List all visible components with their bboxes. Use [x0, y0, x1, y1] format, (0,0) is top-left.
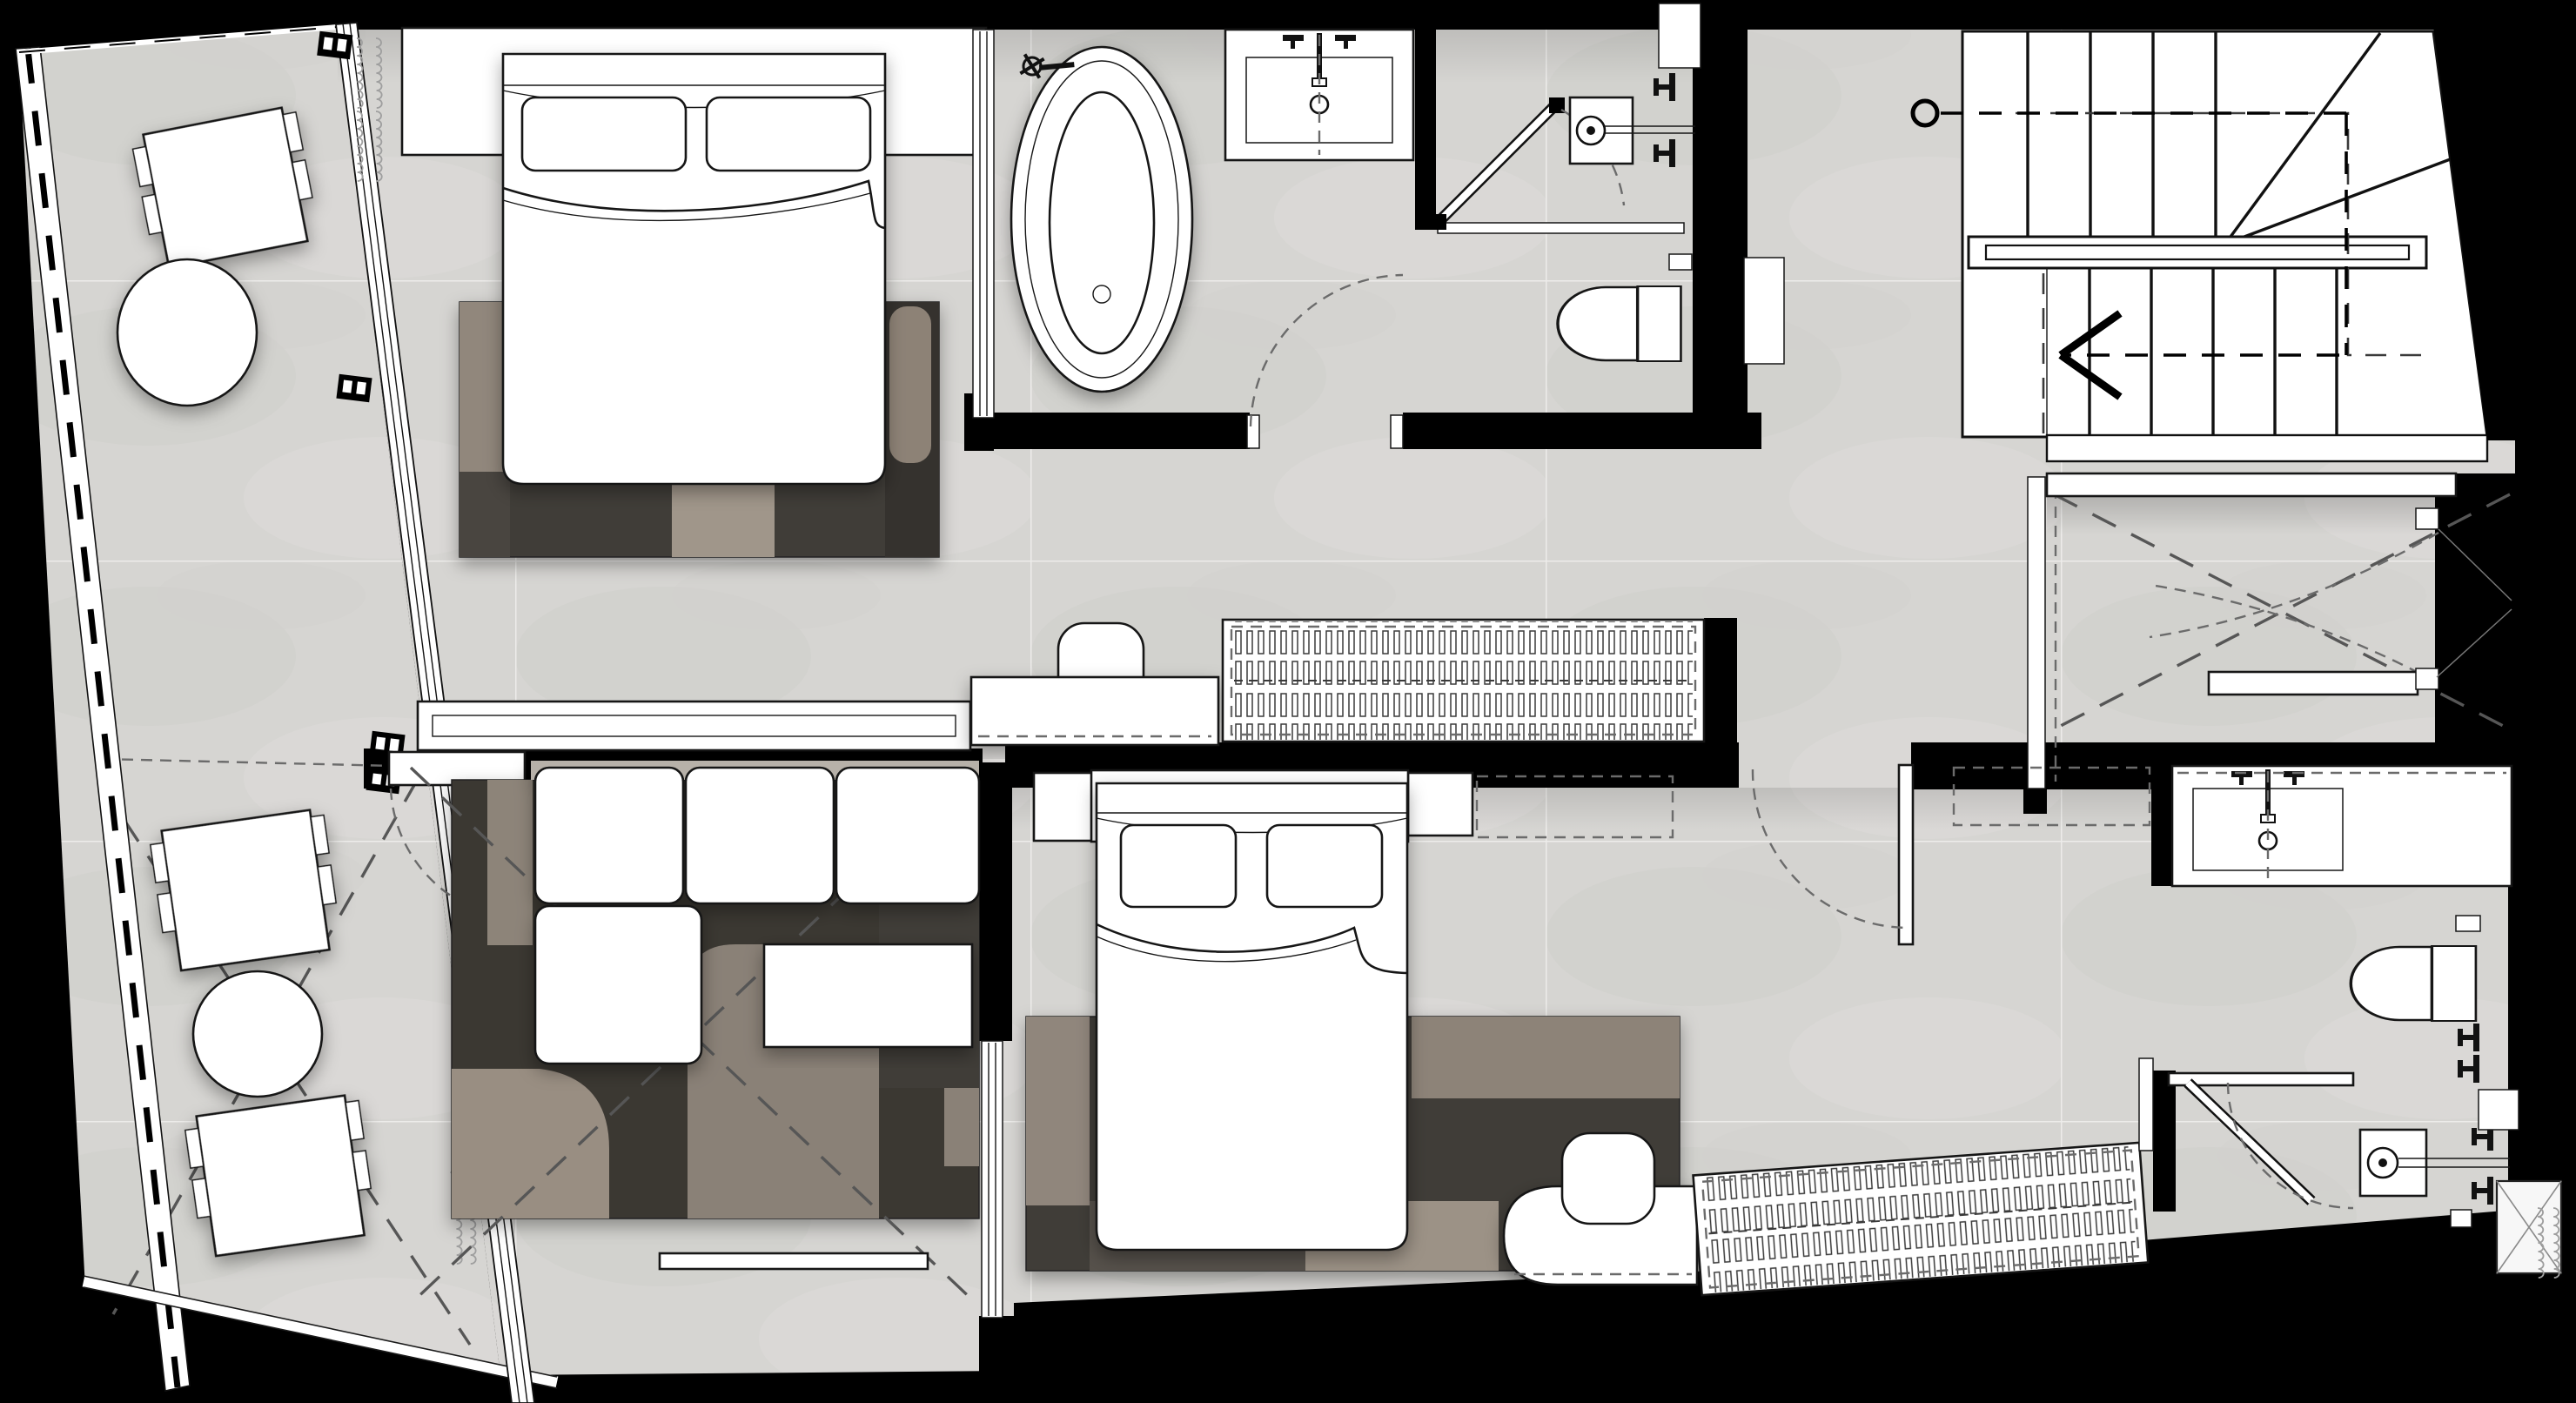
- terrace-lounge-chair-2: [184, 1094, 378, 1259]
- sofa-cushion: [686, 768, 834, 903]
- service-shaft: [2497, 1181, 2561, 1273]
- staircase: [1913, 26, 2517, 461]
- wall-bath2-stub-mid: [2153, 1071, 2176, 1212]
- nightstand: [1408, 773, 1472, 836]
- door-stub: [2416, 668, 2438, 689]
- flush-plate: [2456, 916, 2480, 931]
- vanity-1: [1225, 30, 1413, 160]
- wall-bath1-bottom-left: [969, 413, 1250, 449]
- threshold-bench-top: [2047, 473, 2456, 496]
- vanity-desk: [971, 677, 1218, 745]
- wall-wardrobe1-cheek: [1704, 618, 1737, 745]
- door-jamb: [1391, 415, 1403, 448]
- glazed-partition-right: [982, 1041, 1003, 1318]
- glass-partition: [973, 30, 994, 418]
- bed-2: [1097, 783, 1407, 1250]
- toilet-1: [1558, 286, 1680, 361]
- glazing-connector: [317, 31, 352, 59]
- bed-1: [503, 54, 885, 484]
- nightstand: [1034, 773, 1093, 841]
- dressing-area: [971, 620, 1704, 745]
- floor-plan-screenshot: [0, 0, 2576, 1403]
- storage-bench: [418, 701, 970, 750]
- flush-plate: [1669, 254, 1692, 270]
- desk-chair: [1562, 1133, 1654, 1224]
- glazing-connector: [336, 374, 372, 402]
- coffee-table: [764, 944, 972, 1047]
- sofa-cushion: [535, 768, 683, 903]
- door-stub: [2416, 508, 2438, 529]
- wardrobe-1: [1223, 620, 1704, 742]
- wall-bath1-right: [1693, 28, 1748, 449]
- pillow: [707, 97, 870, 171]
- wall-lounge-right-stub: [979, 1316, 1014, 1373]
- door-leaf: [2139, 1058, 2153, 1151]
- sofa-cushion: [836, 768, 979, 903]
- pillow: [522, 97, 686, 171]
- floor-plan-svg: [0, 0, 2576, 1403]
- vanity-2: [2172, 766, 2512, 886]
- wall-lounge-right: [979, 762, 1012, 1041]
- pillow: [1267, 825, 1382, 907]
- media-console: [660, 1253, 928, 1269]
- pillow: [1121, 825, 1236, 907]
- sofa-chaise: [535, 906, 701, 1064]
- shower-threshold: [1438, 223, 1684, 233]
- toilet-2: [2351, 946, 2476, 1021]
- wall-niche-top: [1659, 3, 1701, 68]
- bench-bottom: [2209, 672, 2418, 695]
- stair-well: [1962, 31, 2487, 437]
- terrace-oval-table-top: [117, 259, 257, 406]
- wall-niche-hall: [1744, 258, 1784, 364]
- door-leaf-hall-bed2: [1899, 765, 1913, 944]
- wall-shower1-divider: [1415, 30, 1436, 230]
- wall-niche: [2479, 1090, 2519, 1130]
- wall-top: [335, 0, 2517, 30]
- terrace-oval-table-bottom: [193, 971, 322, 1097]
- stair-bottom-threshold: [2047, 435, 2487, 461]
- wall-box: [2451, 1210, 2472, 1227]
- door-jamb: [1247, 415, 1259, 448]
- terrace-lounge-chair-1: [149, 809, 343, 973]
- bathtub: [1011, 47, 1192, 392]
